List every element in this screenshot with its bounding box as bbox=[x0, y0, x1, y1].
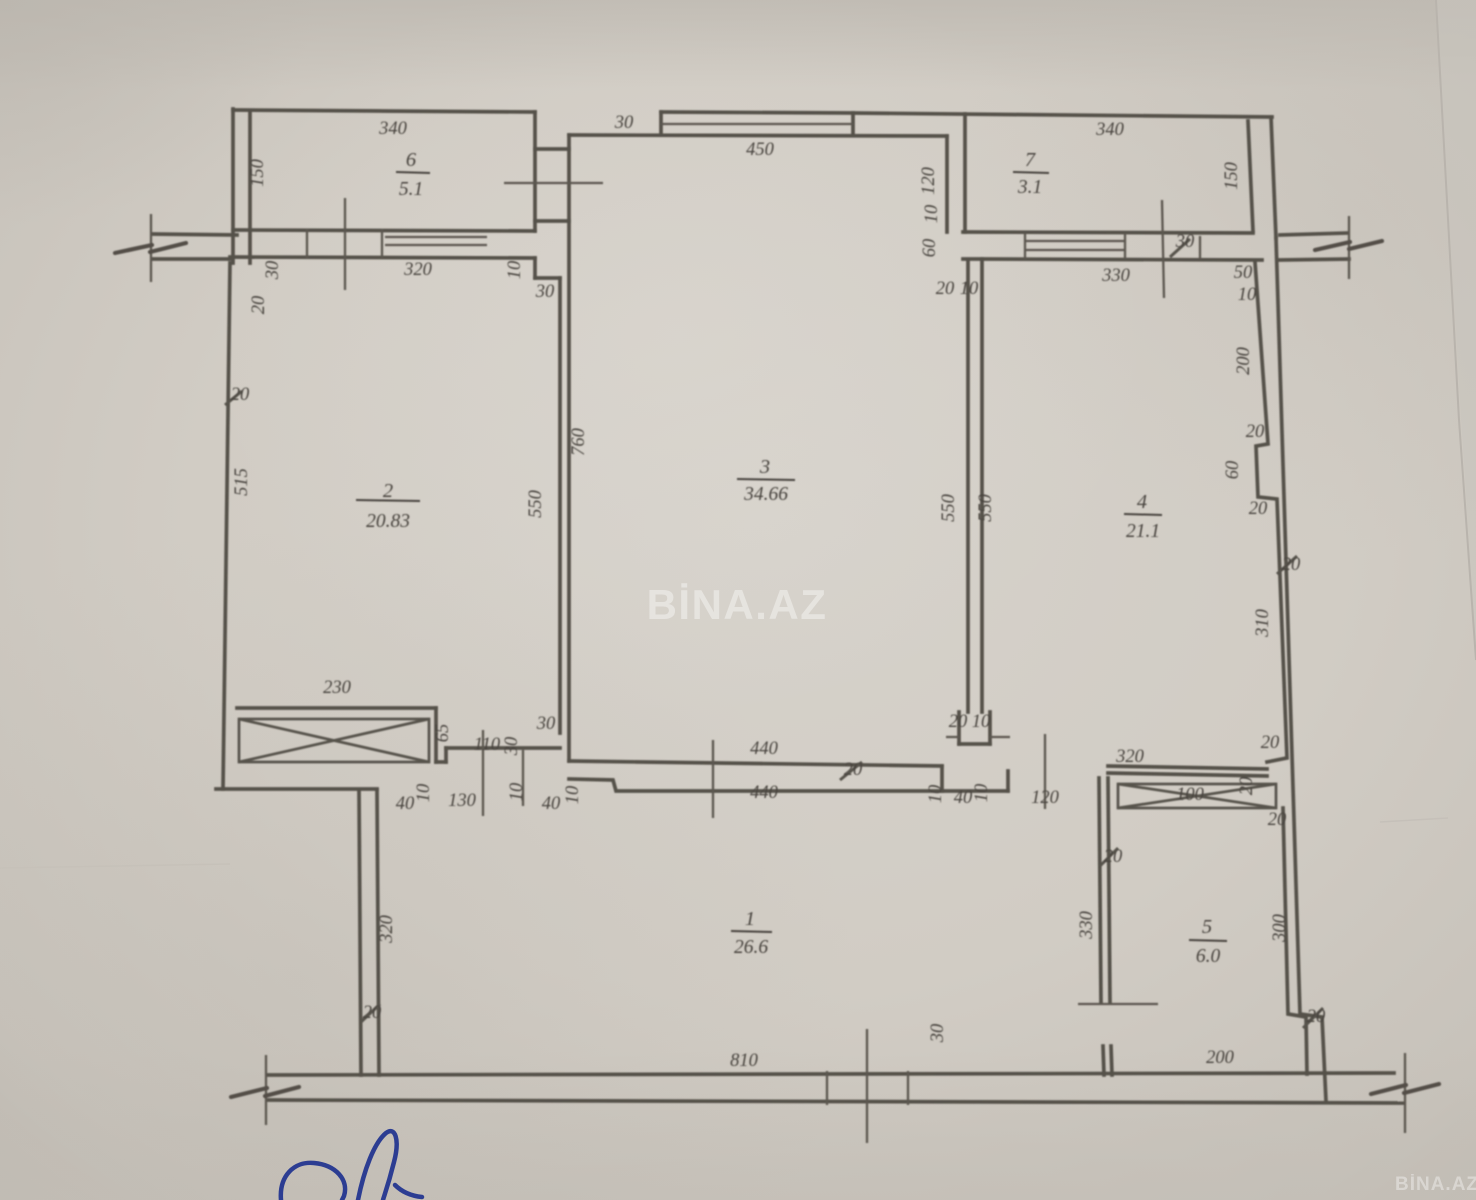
svg-text:10: 10 bbox=[1238, 285, 1257, 305]
svg-text:330: 330 bbox=[1077, 910, 1097, 940]
svg-text:30: 30 bbox=[928, 1023, 948, 1043]
svg-text:20: 20 bbox=[949, 712, 968, 732]
svg-text:BİNA.AZ: BİNA.AZ bbox=[1395, 1174, 1476, 1195]
svg-text:810: 810 bbox=[730, 1051, 759, 1071]
svg-text:340: 340 bbox=[378, 119, 408, 139]
svg-text:440: 440 bbox=[750, 783, 779, 803]
svg-text:300: 300 bbox=[1270, 913, 1290, 943]
svg-text:20: 20 bbox=[1104, 847, 1123, 867]
svg-text:21.1: 21.1 bbox=[1126, 521, 1160, 542]
svg-text:30: 30 bbox=[535, 282, 555, 302]
svg-text:440: 440 bbox=[750, 739, 779, 759]
svg-text:450: 450 bbox=[746, 140, 775, 160]
svg-text:40: 40 bbox=[954, 788, 973, 808]
svg-text:320: 320 bbox=[377, 914, 397, 944]
svg-text:150: 150 bbox=[248, 158, 268, 187]
svg-text:130: 130 bbox=[448, 791, 477, 811]
svg-text:550: 550 bbox=[526, 489, 546, 518]
svg-text:20: 20 bbox=[1249, 499, 1268, 519]
svg-text:110: 110 bbox=[474, 735, 501, 755]
svg-text:40: 40 bbox=[542, 794, 561, 814]
svg-text:320: 320 bbox=[1115, 747, 1145, 767]
svg-text:120: 120 bbox=[1031, 788, 1060, 808]
svg-text:20: 20 bbox=[1246, 422, 1265, 442]
svg-text:10: 10 bbox=[563, 785, 583, 804]
svg-text:30: 30 bbox=[536, 714, 556, 734]
svg-text:10: 10 bbox=[926, 784, 946, 803]
svg-text:50: 50 bbox=[1234, 263, 1253, 283]
svg-text:550: 550 bbox=[939, 493, 959, 522]
svg-text:230: 230 bbox=[323, 678, 352, 698]
svg-text:65: 65 bbox=[433, 724, 453, 743]
svg-text:20: 20 bbox=[249, 295, 269, 314]
svg-text:10: 10 bbox=[922, 204, 942, 223]
svg-text:10: 10 bbox=[972, 783, 992, 802]
svg-text:4: 4 bbox=[1137, 491, 1147, 513]
svg-text:120: 120 bbox=[919, 166, 939, 195]
svg-text:30: 30 bbox=[502, 736, 522, 756]
svg-text:150: 150 bbox=[1222, 161, 1242, 190]
svg-text:3.1: 3.1 bbox=[1017, 177, 1042, 198]
svg-text:20: 20 bbox=[1261, 733, 1280, 753]
svg-text:200: 200 bbox=[1234, 346, 1254, 375]
svg-text:30: 30 bbox=[1175, 232, 1195, 252]
svg-text:20: 20 bbox=[844, 760, 863, 780]
svg-text:2: 2 bbox=[383, 480, 393, 502]
svg-text:34.66: 34.66 bbox=[743, 484, 788, 505]
svg-text:26.6: 26.6 bbox=[734, 937, 768, 958]
svg-text:5.1: 5.1 bbox=[399, 179, 423, 200]
svg-text:20: 20 bbox=[363, 1003, 382, 1023]
svg-text:760: 760 bbox=[569, 427, 589, 456]
svg-text:200: 200 bbox=[1206, 1048, 1235, 1068]
svg-text:30: 30 bbox=[614, 113, 634, 133]
svg-text:20: 20 bbox=[1307, 1007, 1326, 1027]
svg-text:20: 20 bbox=[1282, 555, 1301, 575]
svg-text:BİNA.AZ: BİNA.AZ bbox=[647, 581, 828, 628]
svg-text:330: 330 bbox=[1101, 266, 1131, 286]
svg-text:7: 7 bbox=[1025, 149, 1036, 171]
svg-text:10: 10 bbox=[414, 783, 434, 802]
svg-text:550: 550 bbox=[976, 493, 996, 522]
svg-text:10: 10 bbox=[507, 782, 527, 801]
svg-text:310: 310 bbox=[1253, 608, 1273, 638]
svg-text:20: 20 bbox=[231, 385, 250, 405]
svg-text:100: 100 bbox=[1176, 785, 1205, 805]
svg-text:10: 10 bbox=[972, 712, 991, 732]
svg-text:60: 60 bbox=[1223, 460, 1243, 479]
svg-text:40: 40 bbox=[396, 794, 415, 814]
svg-text:10: 10 bbox=[505, 260, 525, 279]
svg-text:515: 515 bbox=[232, 468, 252, 496]
svg-text:6: 6 bbox=[406, 149, 417, 171]
svg-text:340: 340 bbox=[1095, 120, 1125, 140]
svg-text:1: 1 bbox=[745, 908, 755, 930]
svg-text:20.83: 20.83 bbox=[366, 511, 410, 532]
svg-text:5: 5 bbox=[1202, 916, 1212, 938]
svg-text:20: 20 bbox=[1237, 776, 1257, 795]
svg-text:6.0: 6.0 bbox=[1196, 946, 1221, 967]
svg-text:30: 30 bbox=[263, 260, 283, 280]
svg-text:10: 10 bbox=[960, 279, 979, 299]
svg-text:20: 20 bbox=[1268, 810, 1287, 830]
svg-text:20: 20 bbox=[936, 279, 955, 299]
svg-text:60: 60 bbox=[920, 238, 940, 257]
svg-text:3: 3 bbox=[759, 456, 770, 478]
svg-text:320: 320 bbox=[403, 260, 433, 280]
